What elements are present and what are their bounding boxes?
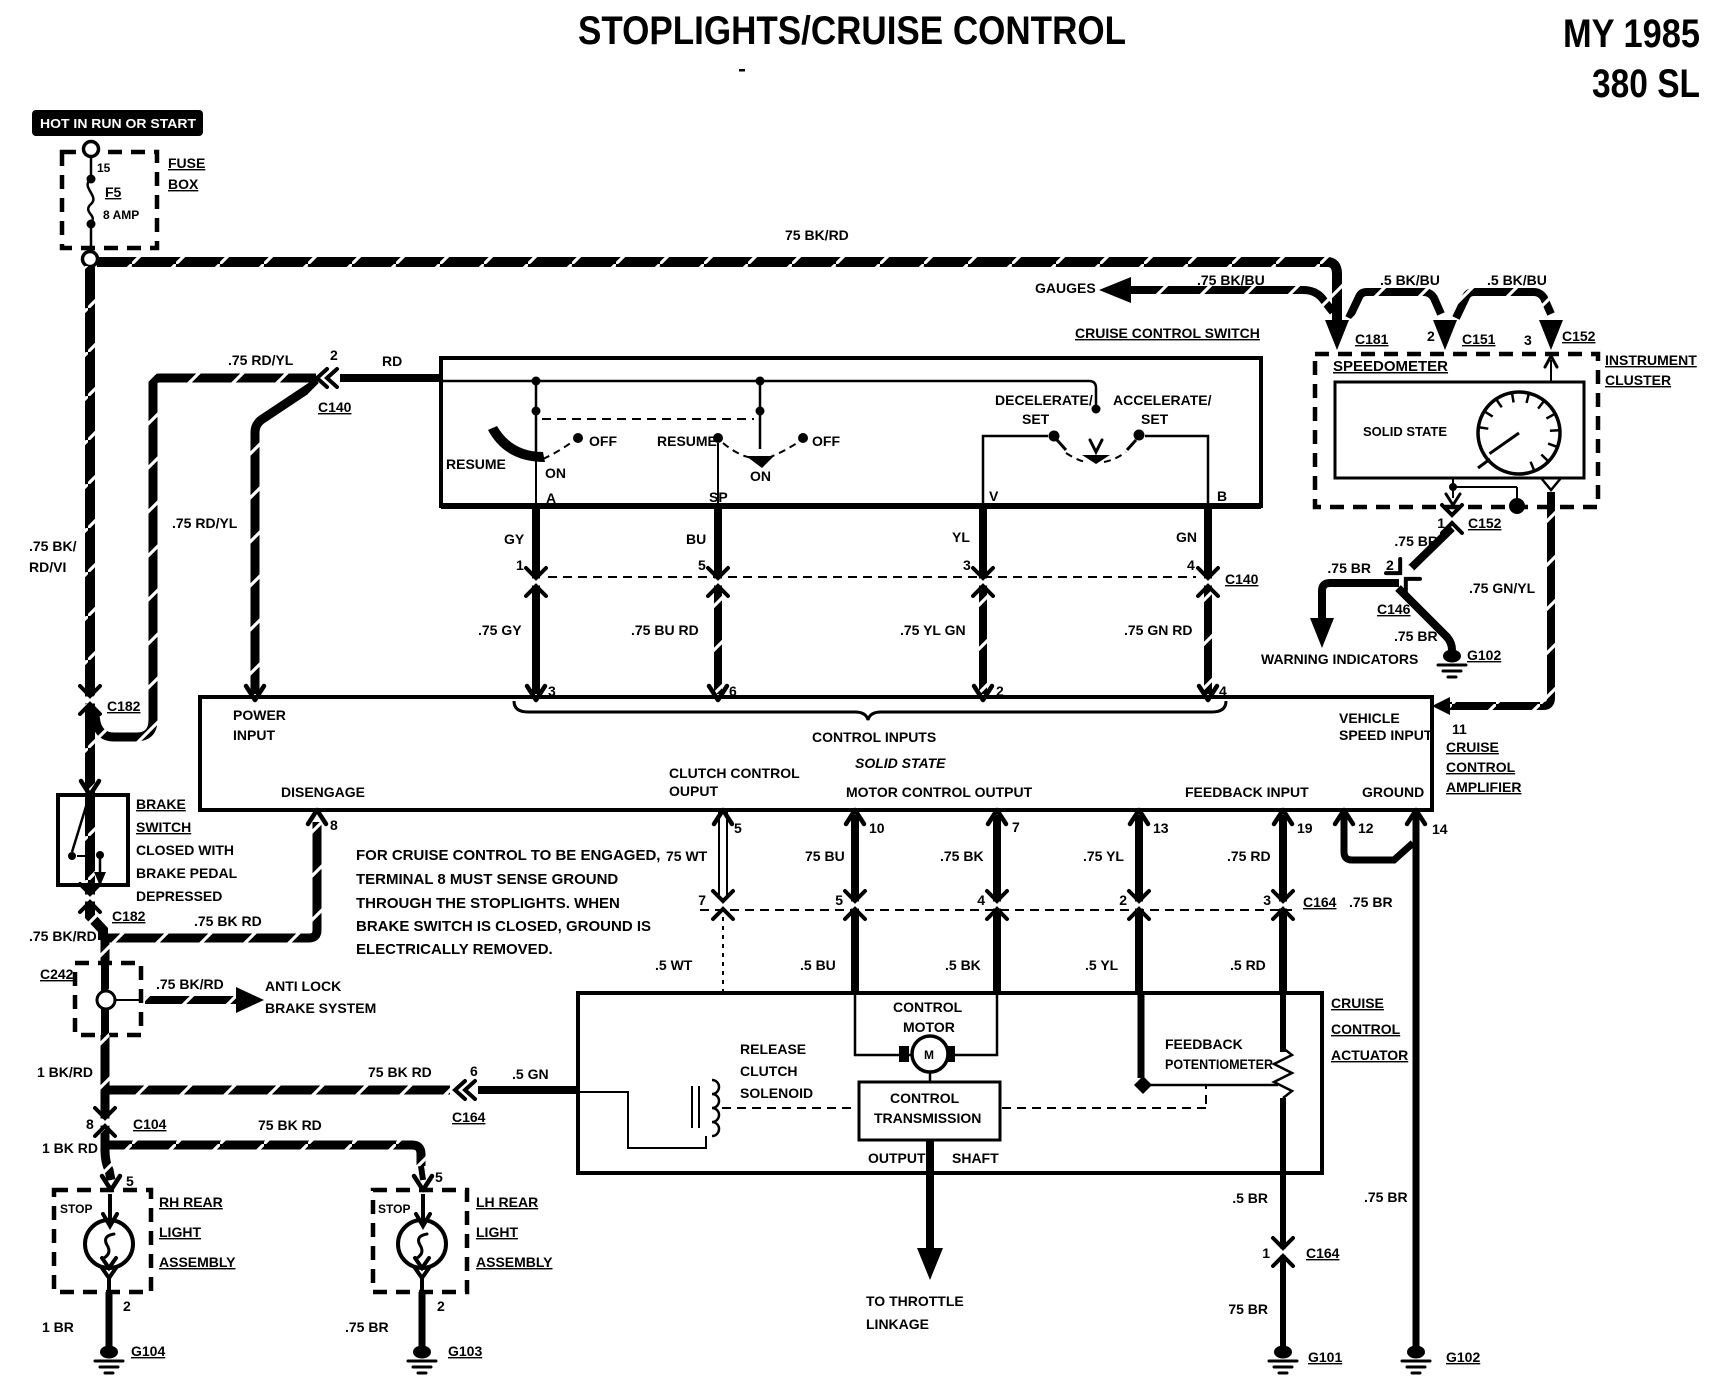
svg-text:TRANSMISSION: TRANSMISSION [874,1110,981,1126]
svg-text:G101: G101 [1308,1349,1342,1365]
svg-text:75 WT: 75 WT [666,848,708,864]
svg-text:RH REAR: RH REAR [159,1194,223,1210]
svg-text:C152: C152 [1468,515,1502,531]
svg-text:.75 BK/: .75 BK/ [29,538,77,554]
svg-text:1 BK/RD: 1 BK/RD [37,1064,93,1080]
svg-text:15: 15 [97,161,111,175]
svg-text:8 AMP: 8 AMP [103,208,139,222]
svg-text:3: 3 [1524,332,1532,348]
svg-text:6: 6 [470,1063,478,1079]
svg-text:LIGHT: LIGHT [159,1224,201,1240]
svg-text:G102: G102 [1467,647,1501,663]
svg-text:HOT IN RUN OR START: HOT IN RUN OR START [40,116,196,131]
svg-text:1: 1 [1437,515,1445,531]
svg-text:THROUGH THE STOPLIGHTS. WHEN: THROUGH THE STOPLIGHTS. WHEN [356,895,620,912]
svg-text:TO THROTTLE: TO THROTTLE [866,1293,964,1309]
svg-text:CRUISE: CRUISE [1331,995,1384,1011]
svg-text:SWITCH: SWITCH [136,819,191,835]
svg-text:ACTUATOR: ACTUATOR [1331,1047,1408,1063]
svg-text:INPUT: INPUT [233,727,275,743]
svg-text:1: 1 [1262,1245,1270,1261]
svg-text:2: 2 [1119,892,1127,908]
svg-text:POTENTIOMETER: POTENTIOMETER [1165,1056,1273,1072]
svg-text:380 SL: 380 SL [1592,62,1700,106]
svg-text:.5 GN: .5 GN [512,1066,549,1082]
svg-text:.75 RD/YL: .75 RD/YL [228,352,294,368]
svg-text:.75 BK/BU: .75 BK/BU [1197,272,1265,288]
svg-text:12: 12 [1358,820,1374,836]
svg-text:MOTOR: MOTOR [903,1019,955,1035]
svg-text:FUSE: FUSE [168,155,205,171]
svg-text:1 BR: 1 BR [42,1319,74,1335]
svg-text:MY 1985: MY 1985 [1563,12,1700,56]
svg-text:5: 5 [435,1169,443,1185]
svg-text:RESUME: RESUME [446,456,506,472]
svg-text:2: 2 [1427,328,1435,344]
svg-text:AMPLIFIER: AMPLIFIER [1446,779,1521,795]
svg-text:.5 BU: .5 BU [800,957,836,973]
svg-text:BRAKE: BRAKE [136,796,186,812]
svg-text:OFF: OFF [812,433,840,449]
svg-text:5: 5 [698,557,706,573]
svg-text:.75 BK: .75 BK [940,848,984,864]
svg-text:GROUND: GROUND [1362,784,1424,800]
svg-text:GAUGES: GAUGES [1035,280,1096,296]
svg-text:.5 BR: .5 BR [1232,1190,1268,1206]
svg-text:C152: C152 [1562,328,1596,344]
svg-text:.75 BK/RD: .75 BK/RD [156,976,224,992]
svg-text:ASSEMBLY: ASSEMBLY [476,1254,553,1270]
svg-text:14: 14 [1432,821,1448,837]
svg-text:.5 BK/BU: .5 BK/BU [1487,272,1547,288]
svg-text:3: 3 [1263,892,1271,908]
svg-text:RD: RD [382,353,402,369]
svg-text:C181: C181 [1355,331,1389,347]
svg-text:STOP: STOP [60,1202,92,1216]
svg-text:SOLID STATE: SOLID STATE [1363,424,1447,439]
svg-text:TERMINAL 8 MUST SENSE GROUND: TERMINAL 8 MUST SENSE GROUND [356,871,618,888]
svg-text:.75 GN RD: .75 GN RD [1124,622,1192,638]
svg-text:RD/VI: RD/VI [29,559,66,575]
svg-text:MOTOR CONTROL OUTPUT: MOTOR CONTROL OUTPUT [846,784,1033,800]
svg-text:5: 5 [734,820,742,836]
svg-text:OUTPUT: OUTPUT [868,1150,926,1166]
svg-text:CONTROL: CONTROL [893,999,963,1015]
svg-text:BRAKE SYSTEM: BRAKE SYSTEM [265,1000,376,1016]
svg-text:STOP: STOP [378,1202,410,1216]
svg-text:ANTI LOCK: ANTI LOCK [265,978,341,994]
svg-text:CRUISE CONTROL SWITCH: CRUISE CONTROL SWITCH [1075,325,1260,341]
svg-text:GY: GY [504,531,525,547]
svg-text:CLUTCH: CLUTCH [740,1063,798,1079]
svg-text:4: 4 [1187,557,1195,573]
svg-text:75 BR: 75 BR [1228,1301,1268,1317]
svg-text:C164: C164 [452,1109,486,1125]
svg-text:11: 11 [1452,721,1467,737]
svg-text:ON: ON [545,465,566,481]
svg-text:19: 19 [1297,820,1313,836]
svg-text:INSTRUMENT: INSTRUMENT [1605,352,1697,368]
svg-text:1: 1 [516,557,524,573]
svg-text:C140: C140 [318,399,352,415]
svg-text:ACCELERATE/: ACCELERATE/ [1113,392,1212,408]
svg-text:7: 7 [1012,819,1020,835]
svg-text:CONTROL INPUTS: CONTROL INPUTS [812,729,936,745]
svg-text:A: A [546,490,556,506]
svg-text:C182: C182 [107,698,141,714]
svg-text:75 BK RD: 75 BK RD [368,1064,432,1080]
svg-text:.75 BR: .75 BR [1394,628,1438,644]
svg-text:RELEASE: RELEASE [740,1041,806,1057]
svg-text:CLOSED WITH: CLOSED WITH [136,842,234,858]
svg-text:10: 10 [869,820,885,836]
svg-text:2: 2 [1386,557,1394,573]
svg-text:C164: C164 [1306,1245,1340,1261]
svg-text:.75 BK/RD: .75 BK/RD [29,928,97,944]
svg-text:CRUISE: CRUISE [1446,739,1499,755]
svg-text:ON: ON [750,468,771,484]
svg-text:75 BK RD: 75 BK RD [258,1117,322,1133]
svg-text:G103: G103 [448,1343,482,1359]
svg-text:CONTROL: CONTROL [890,1090,960,1106]
svg-text:.5 WT: .5 WT [655,957,693,973]
svg-text:C104: C104 [133,1116,167,1132]
svg-text:SPEED INPUT: SPEED INPUT [1339,727,1433,743]
svg-text:2: 2 [123,1298,131,1314]
svg-text:LIGHT: LIGHT [476,1224,518,1240]
svg-text:13: 13 [1153,820,1169,836]
svg-text:SPEEDOMETER: SPEEDOMETER [1333,358,1448,375]
svg-text:YL: YL [952,529,970,545]
svg-text:8: 8 [86,1116,94,1132]
svg-text:FEEDBACK INPUT: FEEDBACK INPUT [1185,784,1309,800]
svg-text:OFF: OFF [589,433,617,449]
svg-text:BRAKE PEDAL: BRAKE PEDAL [136,865,238,881]
svg-text:.75 GN/YL: .75 GN/YL [1469,580,1536,596]
svg-text:.75 BK RD: .75 BK RD [194,913,262,929]
svg-text:.75 BR: .75 BR [345,1319,389,1335]
svg-text:BRAKE SWITCH IS CLOSED, GROUND: BRAKE SWITCH IS CLOSED, GROUND IS [356,918,651,935]
svg-text:M: M [924,1048,934,1062]
svg-text:.5 BK/BU: .5 BK/BU [1380,272,1440,288]
svg-text:2: 2 [330,347,338,363]
svg-text:B: B [1217,488,1227,504]
svg-text:C151: C151 [1462,331,1496,347]
svg-text:.5 BK: .5 BK [945,957,981,973]
svg-text:ELECTRICALLY REMOVED.: ELECTRICALLY REMOVED. [356,941,553,958]
svg-text:75 BK/RD: 75 BK/RD [785,227,849,243]
svg-text:SHAFT: SHAFT [952,1150,999,1166]
svg-text:.5 RD: .5 RD [1230,957,1266,973]
svg-text:CONTROL: CONTROL [1331,1021,1401,1037]
svg-text:8: 8 [330,817,338,833]
svg-text:.75 BR: .75 BR [1349,894,1393,910]
svg-text:DEPRESSED: DEPRESSED [136,888,222,904]
svg-text:STOPLIGHTS/CRUISE CONTROL: STOPLIGHTS/CRUISE CONTROL [578,9,1126,53]
svg-text:5: 5 [126,1173,134,1189]
svg-text:SET: SET [1141,411,1169,427]
svg-text:G104: G104 [131,1343,165,1359]
svg-text:FOR CRUISE CONTROL TO BE ENGAG: FOR CRUISE CONTROL TO BE ENGAGED, [356,847,660,864]
svg-text:F5: F5 [105,184,122,200]
svg-text:.75 BU RD: .75 BU RD [631,622,699,638]
svg-text:CLUSTER: CLUSTER [1605,372,1671,388]
svg-text:.75 YL: .75 YL [1083,848,1124,864]
svg-text:CLUTCH CONTROL: CLUTCH CONTROL [669,765,800,781]
svg-text:2: 2 [437,1298,445,1314]
svg-text:.75 YL GN: .75 YL GN [900,622,966,638]
svg-text:OUPUT: OUPUT [669,783,718,799]
svg-text:V: V [989,488,999,504]
svg-text:LINKAGE: LINKAGE [866,1316,929,1332]
svg-text:.75 BR: .75 BR [1364,1189,1408,1205]
svg-text:.75 GY: .75 GY [478,622,522,638]
svg-text:DISENGAGE: DISENGAGE [281,784,365,800]
svg-text:DECELERATE/: DECELERATE/ [995,392,1093,408]
svg-text:C146: C146 [1377,601,1411,617]
svg-text:.75 RD/YL: .75 RD/YL [172,515,238,531]
svg-text:.75 BR: .75 BR [1327,560,1371,576]
svg-text:C182: C182 [112,908,146,924]
svg-text:1 BK RD: 1 BK RD [42,1140,98,1156]
svg-text:C164: C164 [1303,894,1337,910]
svg-text:5: 5 [835,892,843,908]
svg-text:C140: C140 [1225,571,1259,587]
svg-text:4: 4 [977,892,985,908]
svg-text:75 BU: 75 BU [805,848,845,864]
svg-text:GN: GN [1176,529,1197,545]
svg-text:RESUME: RESUME [657,433,717,449]
svg-text:ASSEMBLY: ASSEMBLY [159,1254,236,1270]
svg-text:3: 3 [963,557,971,573]
svg-text:SOLENOID: SOLENOID [740,1085,813,1101]
svg-text:CONTROL: CONTROL [1446,759,1516,775]
svg-text:LH REAR: LH REAR [476,1194,538,1210]
svg-text:SOLID STATE: SOLID STATE [855,755,946,771]
svg-text:.75 RD: .75 RD [1227,848,1271,864]
svg-text:BOX: BOX [168,176,199,192]
svg-text:G102: G102 [1446,1349,1480,1365]
svg-text:FEEDBACK: FEEDBACK [1165,1036,1243,1052]
svg-text:WARNING INDICATORS: WARNING INDICATORS [1261,651,1418,667]
svg-text:7: 7 [698,892,706,908]
svg-text:SP: SP [709,489,728,505]
svg-text:C242: C242 [40,966,74,982]
svg-text:.5 YL: .5 YL [1085,957,1119,973]
svg-text:POWER: POWER [233,707,286,723]
svg-text:VEHICLE: VEHICLE [1339,710,1400,726]
svg-text:BU: BU [686,531,706,547]
svg-text:SET: SET [1022,411,1050,427]
